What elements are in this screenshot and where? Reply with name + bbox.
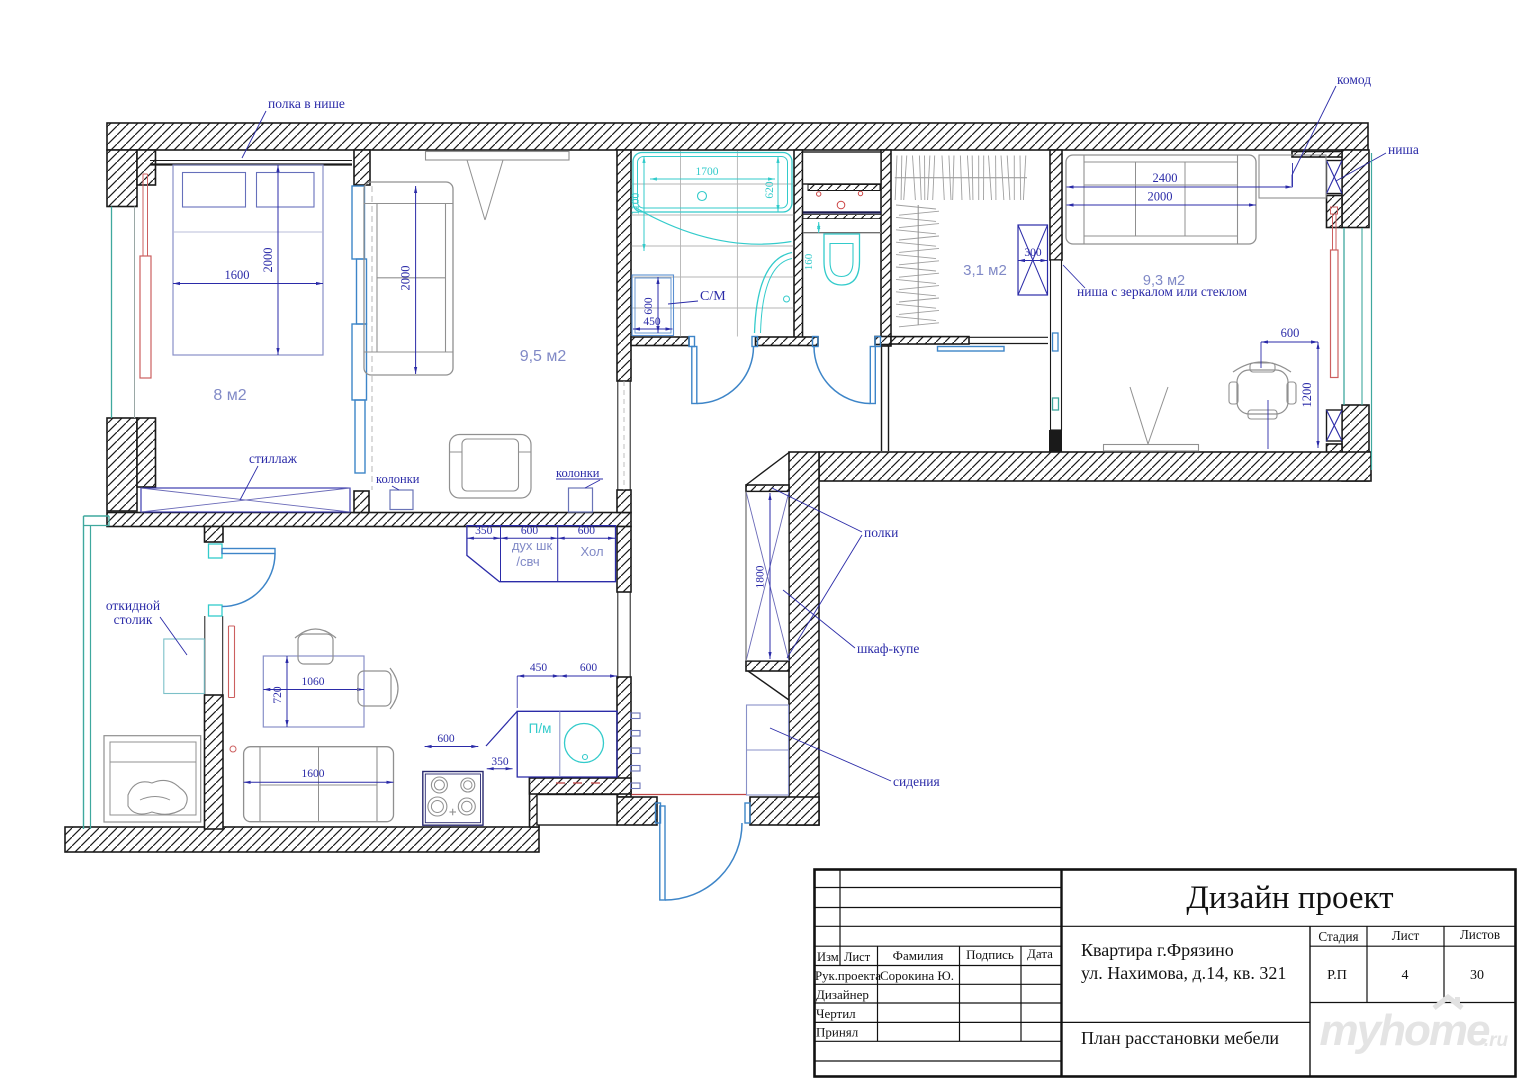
svg-text:2000: 2000: [261, 248, 275, 273]
svg-text:600: 600: [580, 662, 598, 674]
svg-text:Дата: Дата: [1027, 946, 1053, 961]
svg-text:600: 600: [437, 733, 455, 745]
svg-text:Лист: Лист: [1392, 928, 1420, 943]
svg-text:450: 450: [530, 662, 548, 674]
svg-text:1200: 1200: [1300, 383, 1314, 408]
svg-text:ул. Нахимова, д.14, кв. 321: ул. Нахимова, д.14, кв. 321: [1081, 963, 1286, 983]
svg-text:ниша: ниша: [1388, 142, 1419, 157]
svg-text:План расстановки мебели: План расстановки мебели: [1081, 1028, 1279, 1048]
svg-text:350: 350: [491, 756, 509, 768]
svg-text:Лист: Лист: [844, 950, 871, 964]
svg-text:Рук.проекта: Рук.проекта: [815, 969, 881, 983]
svg-text:3,1 м2: 3,1 м2: [963, 262, 1007, 279]
svg-text:П/м: П/м: [529, 721, 552, 736]
svg-text:Квартира г.Фрязино: Квартира г.Фрязино: [1081, 940, 1234, 960]
svg-text:450: 450: [643, 316, 661, 328]
svg-text:/свч: /свч: [516, 554, 539, 569]
svg-text:Дизайнер: Дизайнер: [816, 987, 869, 1002]
svg-text:Изм: Изм: [817, 950, 839, 964]
svg-text:дух шк: дух шк: [512, 538, 553, 553]
svg-text:720: 720: [272, 686, 284, 704]
svg-text:300: 300: [1024, 247, 1042, 259]
svg-text:Принял: Принял: [816, 1025, 859, 1040]
svg-text:Подпись: Подпись: [966, 947, 1014, 962]
svg-text:Фамилия: Фамилия: [893, 948, 944, 963]
svg-text:шкаф-купе: шкаф-купе: [857, 641, 919, 656]
svg-text:полка в нише: полка в нише: [268, 96, 345, 111]
svg-text:4: 4: [1402, 968, 1409, 983]
svg-text:Стадия: Стадия: [1318, 929, 1358, 944]
svg-text:9,5 м2: 9,5 м2: [520, 348, 567, 365]
svg-text:столик: столик: [114, 612, 153, 627]
svg-text:1800: 1800: [755, 565, 767, 588]
svg-text:350: 350: [475, 525, 493, 537]
svg-text:колонки: колонки: [376, 472, 420, 486]
svg-text:9,3 м2: 9,3 м2: [1143, 273, 1185, 289]
svg-text:стиллаж: стиллаж: [249, 451, 298, 466]
svg-text:Сорокина Ю.: Сорокина Ю.: [880, 968, 954, 983]
svg-text:2000: 2000: [1148, 190, 1173, 204]
svg-text:1700: 1700: [696, 166, 719, 178]
svg-text:1600: 1600: [225, 268, 250, 282]
svg-text:1060: 1060: [302, 676, 325, 688]
svg-text:600: 600: [643, 297, 655, 315]
svg-text:8 м2: 8 м2: [213, 387, 246, 404]
svg-text:Р.П: Р.П: [1327, 968, 1347, 983]
svg-text:600: 600: [1281, 326, 1300, 340]
svg-text:160: 160: [803, 253, 815, 270]
svg-text:полки: полки: [864, 525, 898, 540]
svg-text:600: 600: [521, 525, 539, 537]
svg-text:2400: 2400: [1153, 171, 1178, 185]
svg-text:С/М: С/М: [700, 289, 726, 304]
svg-text:620: 620: [764, 181, 776, 199]
svg-text:Дизайн проект: Дизайн проект: [1186, 880, 1393, 916]
svg-text:откидной: откидной: [106, 598, 160, 613]
svg-text:комод: комод: [1337, 72, 1371, 87]
svg-text:600: 600: [578, 525, 596, 537]
svg-text:Хол: Хол: [580, 544, 603, 559]
svg-text:.ru: .ru: [1484, 1030, 1509, 1051]
svg-text:Чертил: Чертил: [816, 1006, 856, 1021]
svg-text:2000: 2000: [399, 266, 413, 291]
svg-text:myhome: myhome: [1320, 1006, 1490, 1055]
svg-text:1600: 1600: [302, 768, 325, 780]
svg-text:колонки: колонки: [556, 466, 600, 480]
svg-text:Листов: Листов: [1460, 927, 1500, 942]
svg-text:30: 30: [1470, 968, 1484, 983]
svg-text:1100: 1100: [630, 192, 642, 215]
svg-text:сидения: сидения: [893, 774, 940, 789]
